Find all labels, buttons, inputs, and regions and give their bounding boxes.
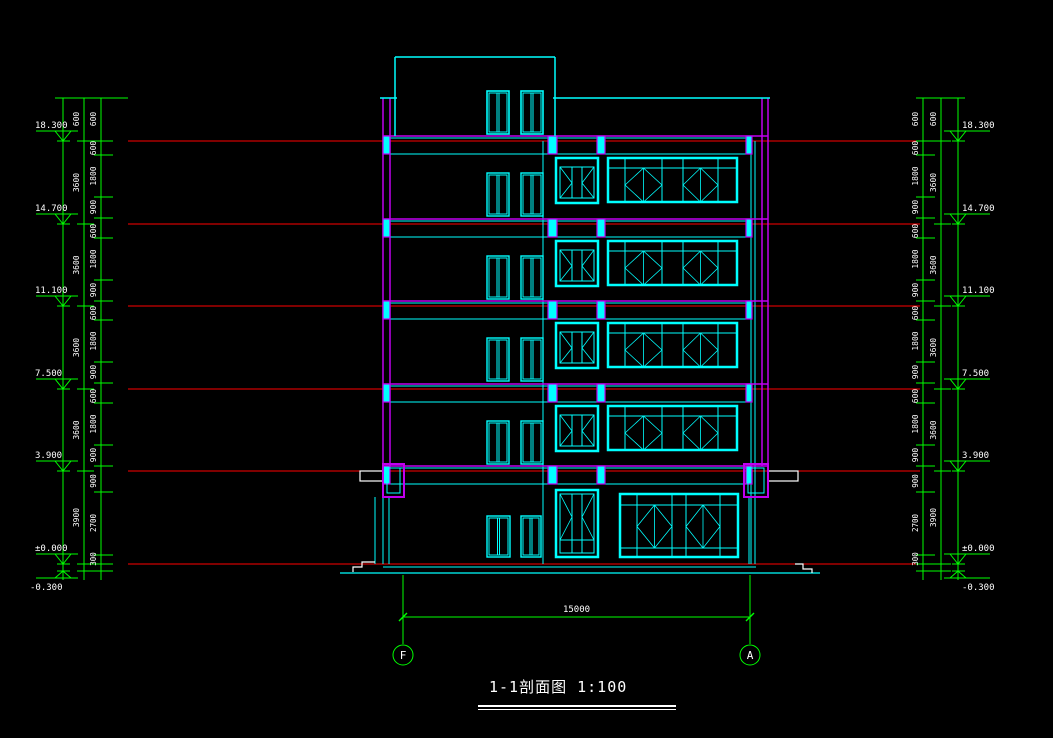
svg-text:900: 900 <box>89 283 98 298</box>
svg-text:300: 300 <box>911 552 920 566</box>
left-dimension-chain: 6003600360036003600390060060018009006001… <box>55 98 128 580</box>
svg-text:7.500: 7.500 <box>35 369 62 379</box>
svg-text:3600: 3600 <box>929 173 938 192</box>
svg-text:900: 900 <box>911 365 920 380</box>
svg-text:900: 900 <box>89 365 98 380</box>
svg-text:14.700: 14.700 <box>35 204 68 214</box>
svg-text:±0.000: ±0.000 <box>35 544 68 554</box>
svg-text:600: 600 <box>89 224 98 239</box>
svg-text:3900: 3900 <box>929 508 938 527</box>
svg-text:1800: 1800 <box>89 331 98 350</box>
right-dimension-chain: 6003600360036003600390060060018009006001… <box>911 98 965 580</box>
svg-text:900: 900 <box>911 283 920 298</box>
svg-text:600: 600 <box>929 112 938 127</box>
svg-text:1800: 1800 <box>89 166 98 185</box>
svg-text:600: 600 <box>89 112 98 127</box>
svg-text:11.100: 11.100 <box>962 286 995 296</box>
svg-text:600: 600 <box>911 306 920 321</box>
svg-text:1800: 1800 <box>911 414 920 433</box>
svg-text:900: 900 <box>911 200 920 215</box>
svg-text:900: 900 <box>89 200 98 215</box>
grid-axes: FA15000 <box>393 575 760 665</box>
svg-text:F: F <box>400 649 407 662</box>
cad-viewport[interactable]: 6003600360036003600390060060018009006001… <box>0 0 1053 738</box>
svg-text:600: 600 <box>89 389 98 404</box>
svg-text:900: 900 <box>89 474 98 488</box>
svg-text:900: 900 <box>911 448 920 463</box>
right-elevation-markers: 18.30014.70011.1007.5003.900±0.000-0.300 <box>944 121 995 593</box>
svg-text:7.500: 7.500 <box>962 369 989 379</box>
svg-text:1800: 1800 <box>89 249 98 268</box>
svg-text:3600: 3600 <box>929 420 938 439</box>
svg-text:18.300: 18.300 <box>35 121 68 131</box>
svg-text:3600: 3600 <box>72 420 81 439</box>
svg-text:3600: 3600 <box>929 338 938 357</box>
svg-text:600: 600 <box>89 141 98 156</box>
svg-text:A: A <box>747 649 754 662</box>
svg-text:3.900: 3.900 <box>962 451 989 461</box>
svg-text:3600: 3600 <box>72 173 81 192</box>
svg-text:11.100: 11.100 <box>35 286 68 296</box>
building-section <box>375 57 770 564</box>
svg-text:3600: 3600 <box>72 338 81 357</box>
svg-text:3.900: 3.900 <box>35 451 62 461</box>
svg-text:1800: 1800 <box>911 249 920 268</box>
svg-text:14.700: 14.700 <box>962 204 995 214</box>
svg-text:-0.300: -0.300 <box>30 583 63 593</box>
svg-text:900: 900 <box>89 448 98 463</box>
svg-text:3900: 3900 <box>72 508 81 527</box>
svg-text:300: 300 <box>89 552 98 566</box>
title-underline-thick <box>478 705 676 707</box>
left-elevation-markers: 18.30014.70011.1007.5003.900±0.000-0.300 <box>30 121 78 593</box>
drawing-canvas[interactable]: 6003600360036003600390060060018009006001… <box>0 0 1053 738</box>
svg-text:600: 600 <box>89 306 98 321</box>
svg-text:1800: 1800 <box>911 166 920 185</box>
canopies <box>360 464 798 497</box>
svg-text:-0.300: -0.300 <box>962 583 995 593</box>
level-lines-red <box>128 141 920 564</box>
svg-text:18.300: 18.300 <box>962 121 995 131</box>
svg-text:3600: 3600 <box>929 255 938 274</box>
svg-text:600: 600 <box>911 224 920 239</box>
svg-text:600: 600 <box>911 141 920 156</box>
svg-text:±0.000: ±0.000 <box>962 544 995 554</box>
svg-text:3600: 3600 <box>72 255 81 274</box>
svg-text:600: 600 <box>911 389 920 404</box>
svg-text:600: 600 <box>72 112 81 127</box>
drawing-title: 1-1剖面图 1:100 <box>489 676 627 697</box>
title-underline-thin <box>478 709 676 710</box>
svg-text:2700: 2700 <box>89 513 98 532</box>
svg-text:2700: 2700 <box>911 513 920 532</box>
svg-text:15000: 15000 <box>563 605 590 615</box>
svg-text:900: 900 <box>911 474 920 488</box>
svg-text:1800: 1800 <box>911 331 920 350</box>
svg-text:1800: 1800 <box>89 414 98 433</box>
svg-text:600: 600 <box>911 112 920 127</box>
